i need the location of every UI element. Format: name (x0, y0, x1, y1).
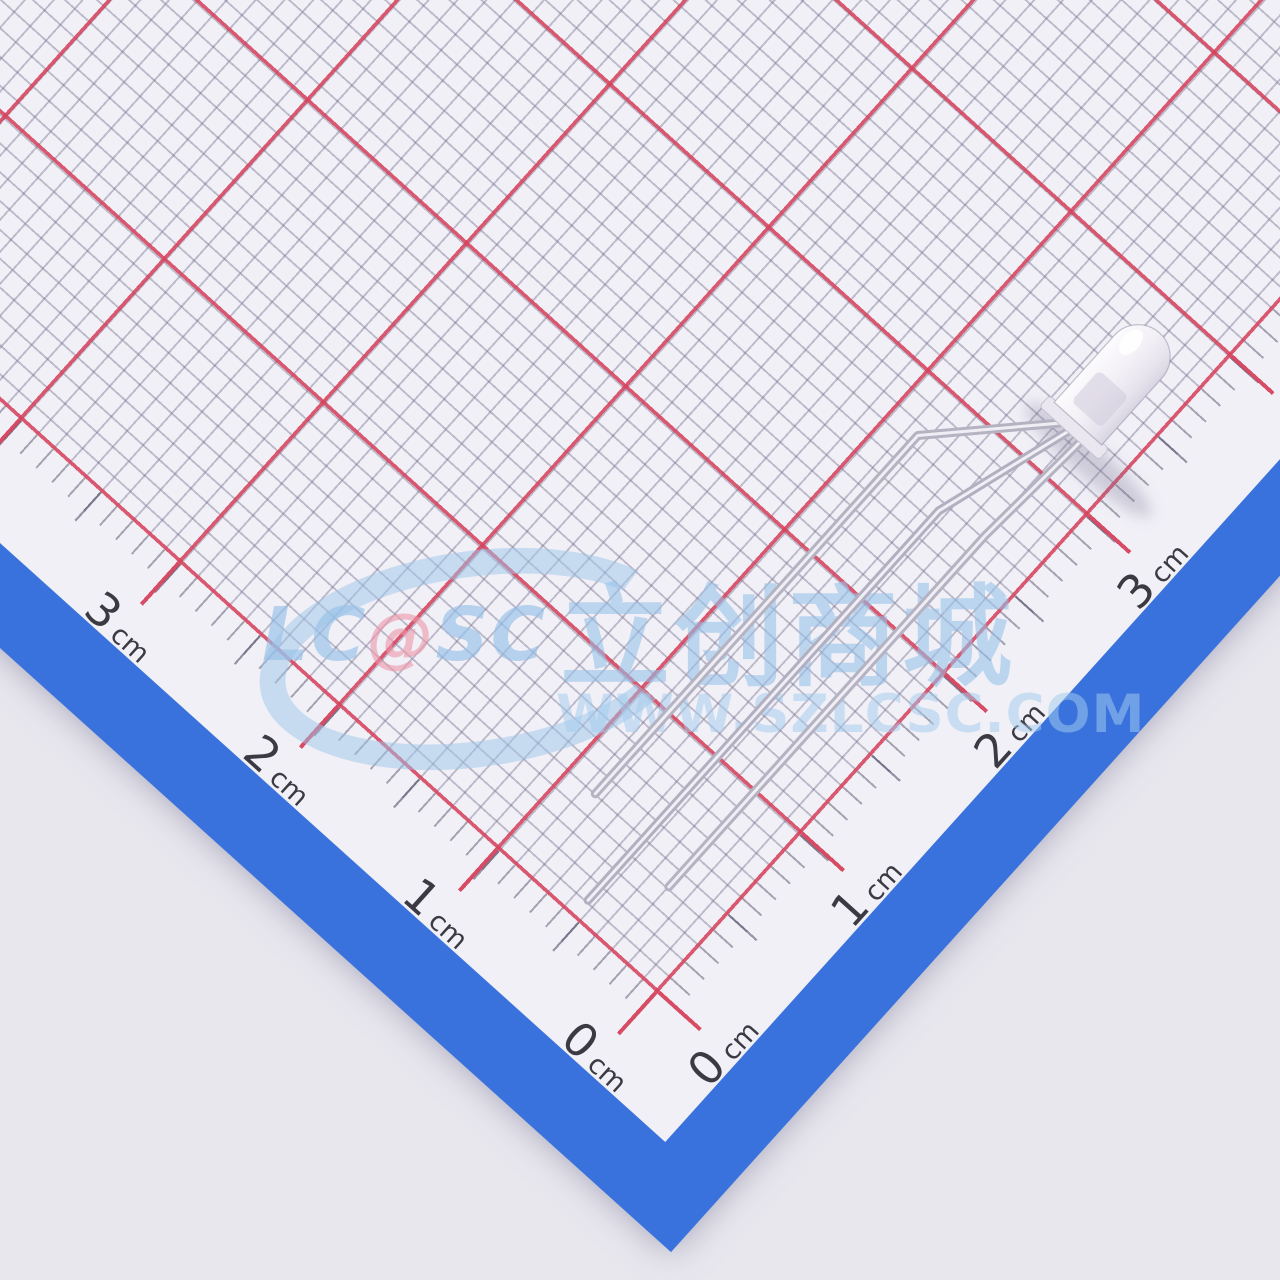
logo-sc: SC (435, 592, 547, 678)
website-url: WWW.SZLCSC.COM (556, 684, 1145, 745)
logo-at-icon: @ (367, 599, 435, 676)
watermark-layer: LC@SC 立创商城 WWW.SZLCSC.COM (0, 0, 1280, 1280)
product-photo: 0cm 1cm 2cm 3cm 0cm 1cm 2cm 3cm (0, 0, 1280, 1280)
logo-lc: LC (262, 592, 367, 678)
lcsc-logo-text: LC@SC (262, 592, 547, 678)
